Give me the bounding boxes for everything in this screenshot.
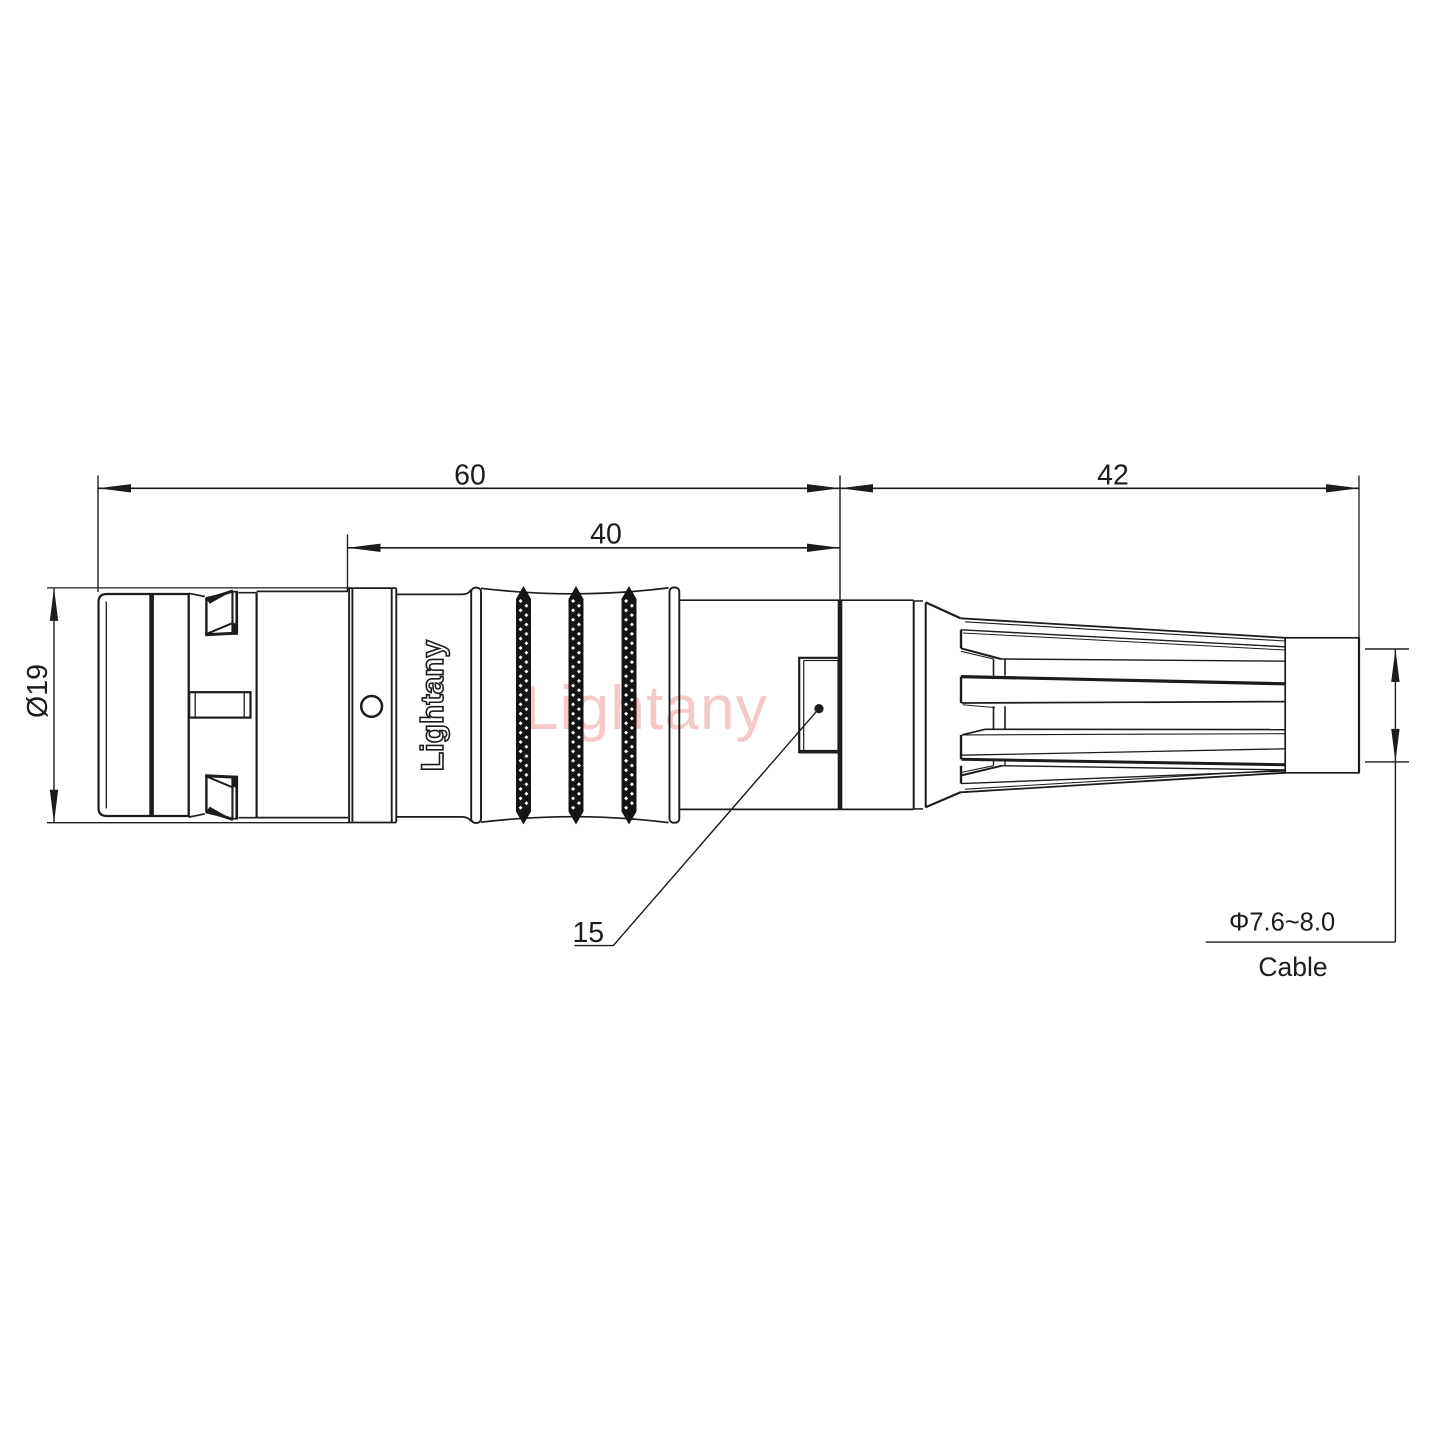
svg-text:Lightany: Lightany bbox=[524, 674, 768, 743]
svg-text:15: 15 bbox=[572, 917, 604, 949]
svg-text:42: 42 bbox=[1097, 460, 1129, 492]
svg-text:Cable: Cable bbox=[1258, 952, 1327, 982]
svg-text:40: 40 bbox=[590, 519, 622, 551]
svg-text:Φ7.6~8.0: Φ7.6~8.0 bbox=[1229, 909, 1335, 937]
svg-text:Lightany: Lightany bbox=[414, 639, 450, 771]
svg-text:60: 60 bbox=[454, 460, 486, 492]
svg-text:Ø19: Ø19 bbox=[22, 664, 54, 718]
